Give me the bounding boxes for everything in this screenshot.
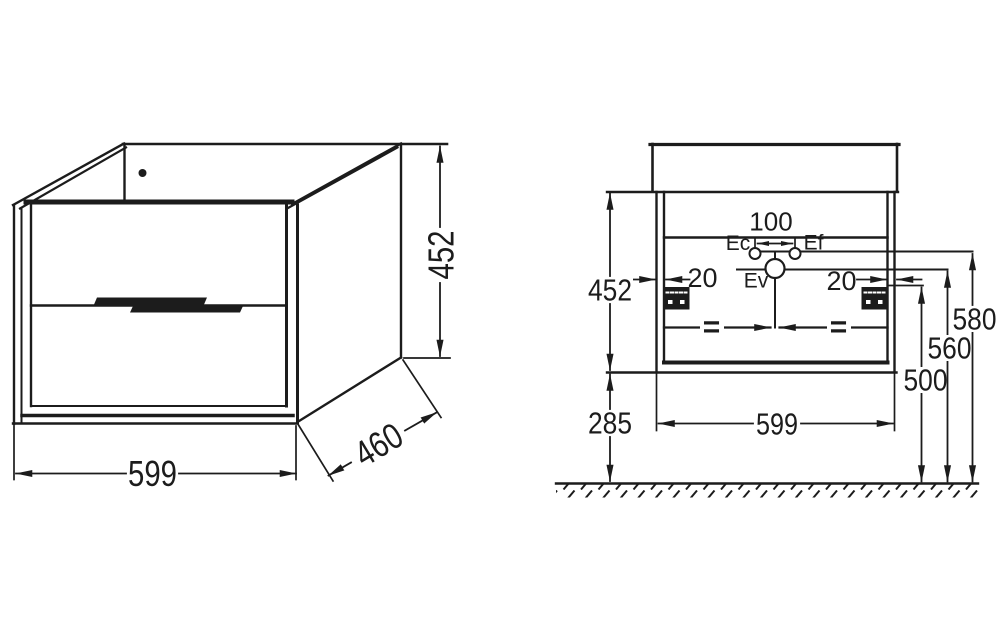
equal-mark-left: = [703,311,721,344]
ground-line [556,484,978,498]
hot-water-port [790,248,801,259]
dim-iso-width: 599 [14,426,296,494]
front-elevation-view: 100 Ec Ef Ev = = [556,144,999,498]
dim-iso-width-label: 599 [128,453,177,494]
dim-iso-height: 452 [404,147,462,359]
dim-front-width-label: 599 [756,407,798,442]
dim-floor-clearance-label: 285 [588,406,632,441]
washbasin-top [650,144,899,191]
cold-water-label: Ec [726,232,751,255]
dim-front-height-label: 452 [588,273,632,308]
wall-bracket-left [664,287,690,310]
dim-floor-clearance: 285 [586,375,633,482]
waste-outlet-label: Ev [744,270,769,293]
dim-cold-hot-height: 580 [951,254,999,482]
back-panel-screw-hole [139,169,147,177]
equal-mark-right: = [830,311,848,344]
ground-hatch [556,485,978,498]
dim-bracket-height: 500 [888,286,949,482]
drawing-canvas: 599 452 460 [0,0,1000,628]
wall-bracket-right [862,287,888,310]
dim-iso-depth-label: 460 [347,414,410,474]
dim-cold-hot-height-label: 580 [953,302,997,337]
dim-iso-height-label: 452 [421,231,462,280]
dim-bracket-inset-right-label: 20 [826,266,856,296]
tap-spacing-label: 100 [749,207,792,237]
hot-water-label: Ef [804,232,824,255]
drawer-handle-bottom [130,306,243,313]
cold-water-port [750,248,761,259]
dim-bracket-height-label: 500 [904,363,948,398]
technical-drawing-page: 599 452 460 [0,0,1000,628]
dim-front-width: 599 [657,374,895,442]
dim-bracket-inset-left-label: 20 [687,263,717,293]
dim-front-height: 452 [586,194,633,371]
isometric-view: 599 452 460 [13,144,462,495]
drawer-handle-top [94,298,207,305]
cabinet-carcass-outline [13,144,447,425]
waste-outlet-port [766,259,785,278]
